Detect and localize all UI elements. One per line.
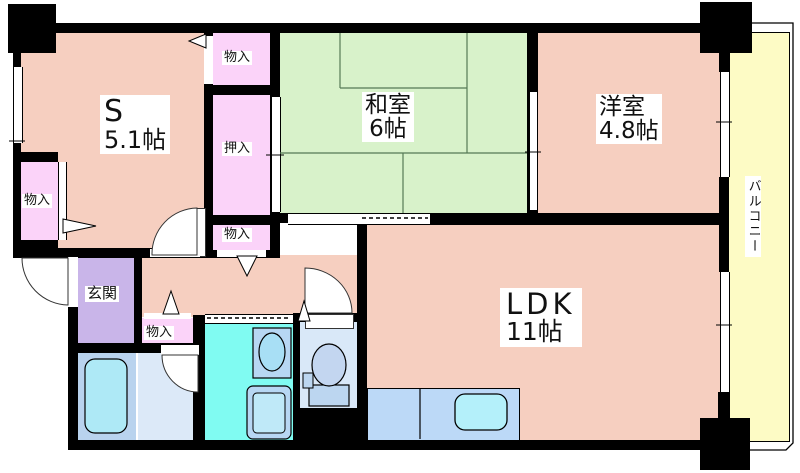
hallway-floor (142, 255, 362, 317)
closet-mid-label: 物入 (222, 228, 252, 242)
wall-entrance-right (134, 257, 142, 348)
sliding-door-futon-closet (271, 97, 281, 212)
washroom-floor (205, 322, 293, 440)
wall-top (56, 23, 700, 33)
wall-closet-left-bottom (13, 240, 58, 248)
door-opening-closet-top (204, 35, 213, 85)
japanese-room-label: 和室 6帖 (362, 92, 414, 142)
futon-closet-label: 押入 (222, 142, 252, 156)
wall-right-a (719, 53, 730, 72)
wall-washitsu-sw (280, 213, 288, 223)
bathroom-floor (78, 353, 136, 440)
closet-left-label: 物入 (22, 194, 52, 208)
service-room-name: S (104, 96, 166, 128)
window-western-room-balcony (720, 72, 730, 177)
service-room-size: 5.1帖 (104, 128, 166, 153)
front-door-opening (68, 257, 78, 307)
kitchen-counter (367, 388, 520, 442)
ldk-name: LDK (506, 289, 576, 319)
wall-right-b (719, 177, 729, 272)
pillar-bottom-right (700, 418, 750, 470)
entrance-label: 玄関 (85, 286, 119, 302)
door-leaf-toilet (305, 314, 354, 329)
service-room-label: S 5.1帖 (100, 95, 170, 154)
sliding-partition-washroom (205, 314, 293, 324)
western-room-label: 洋室 4.8帖 (596, 94, 662, 144)
wall-left-a (13, 53, 21, 67)
wall-closet-div2 (204, 215, 270, 225)
door-opening-closet-mid (217, 250, 266, 257)
western-room-size: 4.8帖 (599, 119, 659, 143)
window-ldk-balcony (720, 272, 730, 392)
floor-plan: S 5.1帖 和室 6帖 洋室 4.8帖 LDK 11帖 玄関 バルコニー 物入… (0, 0, 800, 473)
wall-below-toilet (293, 408, 363, 448)
door-opening-powder-room (161, 345, 199, 355)
japanese-room-name: 和室 (365, 93, 411, 117)
wall-closet-div1 (204, 85, 270, 95)
wall-right-c (718, 392, 730, 420)
japanese-room-size: 6帖 (365, 117, 411, 141)
wall-washitsu-south (430, 213, 530, 225)
wall-washroom-left (193, 315, 205, 440)
door-opening-closet-left (58, 162, 67, 240)
powder-room-floor (138, 353, 193, 440)
pillar-top-right (700, 2, 752, 53)
sliding-door-washitsu-south (288, 213, 430, 225)
wall-closet-left-top (13, 152, 58, 162)
door-opening-closet-hall (144, 313, 191, 319)
pillar-top-left (8, 4, 56, 53)
door-opening-service-room (150, 249, 200, 257)
closet-top-label: 物入 (222, 51, 252, 65)
toilet-room-floor (300, 322, 357, 408)
wall-hall-ldk (357, 223, 367, 448)
window-left (13, 67, 23, 143)
wall-bottom (68, 440, 750, 450)
wall-ldk-north (530, 213, 728, 225)
balcony-label: バルコニー (745, 176, 761, 257)
ldk-label: LDK 11帖 (500, 288, 582, 347)
closet-hall-label: 物入 (144, 326, 174, 340)
western-room-name: 洋室 (599, 95, 659, 119)
ldk-size: 11帖 (506, 319, 576, 345)
window-washitsu-east (529, 92, 538, 210)
door-arc-front-door (22, 258, 68, 305)
